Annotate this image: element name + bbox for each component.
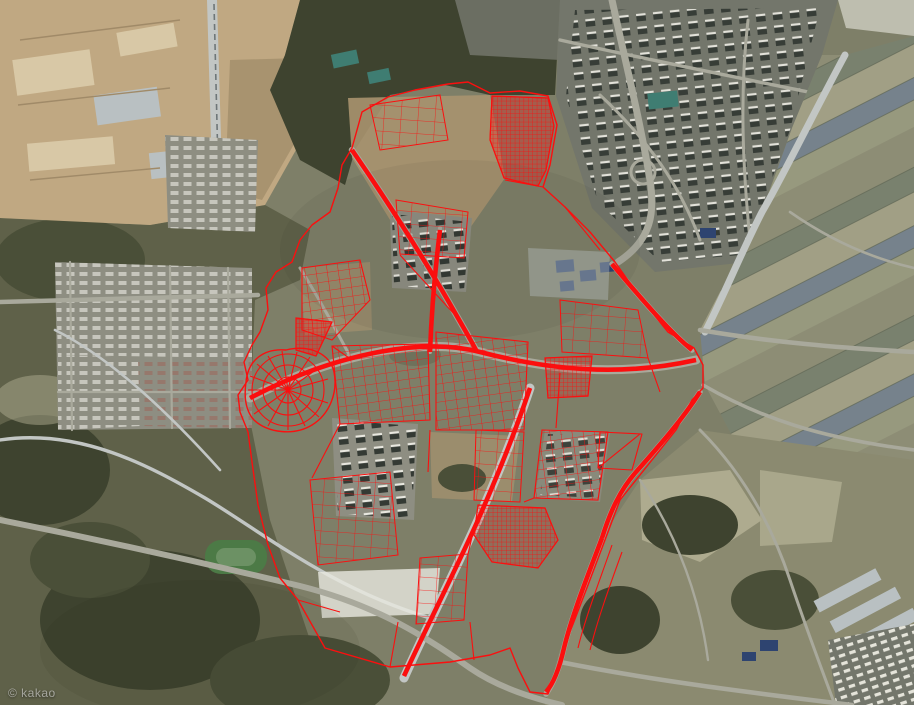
map-viewport[interactable]: © kakao [0, 0, 914, 705]
satellite-map[interactable] [0, 0, 914, 705]
map-attribution-watermark: © kakao [8, 686, 56, 700]
attribution-text: © kakao [8, 686, 56, 700]
quarry-earthworks [0, 0, 310, 225]
overlay-dense-block-central [545, 356, 592, 398]
town-upper-left [165, 135, 258, 232]
